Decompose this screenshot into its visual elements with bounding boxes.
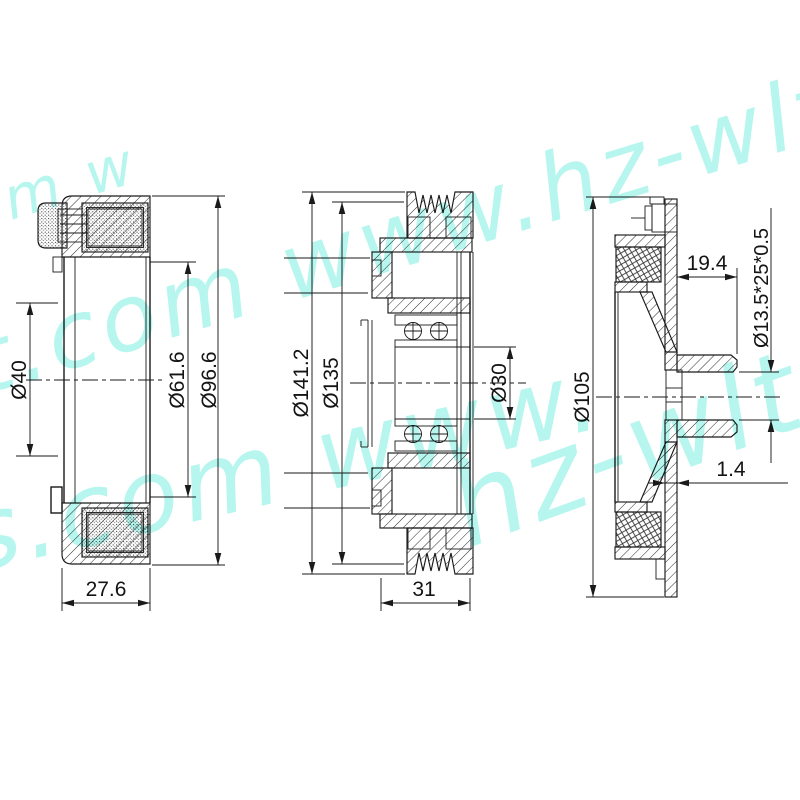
clutch-assembly-drawing: Ø96.6 Ø61.6 Ø40 27.6: [0, 0, 800, 800]
dim-label-pulley-width: 31: [412, 578, 435, 601]
technical-drawing-page: Ø96.6 Ø61.6 Ø40 27.6: [0, 0, 800, 800]
dim-label-coil-width: 27.6: [86, 578, 127, 601]
dim-hub-length: 19.4: [677, 252, 737, 354]
coil-winding-top: [82, 203, 148, 252]
bearing-top: [395, 315, 457, 347]
dim-label-hub-length: 19.4: [687, 252, 728, 275]
dim-coil-width: 27.6: [62, 568, 150, 611]
dim-pulley-width: 31: [381, 578, 470, 611]
dim-label-coil-outer: Ø96.6: [198, 351, 221, 408]
rubber-damper-top: [616, 247, 661, 282]
